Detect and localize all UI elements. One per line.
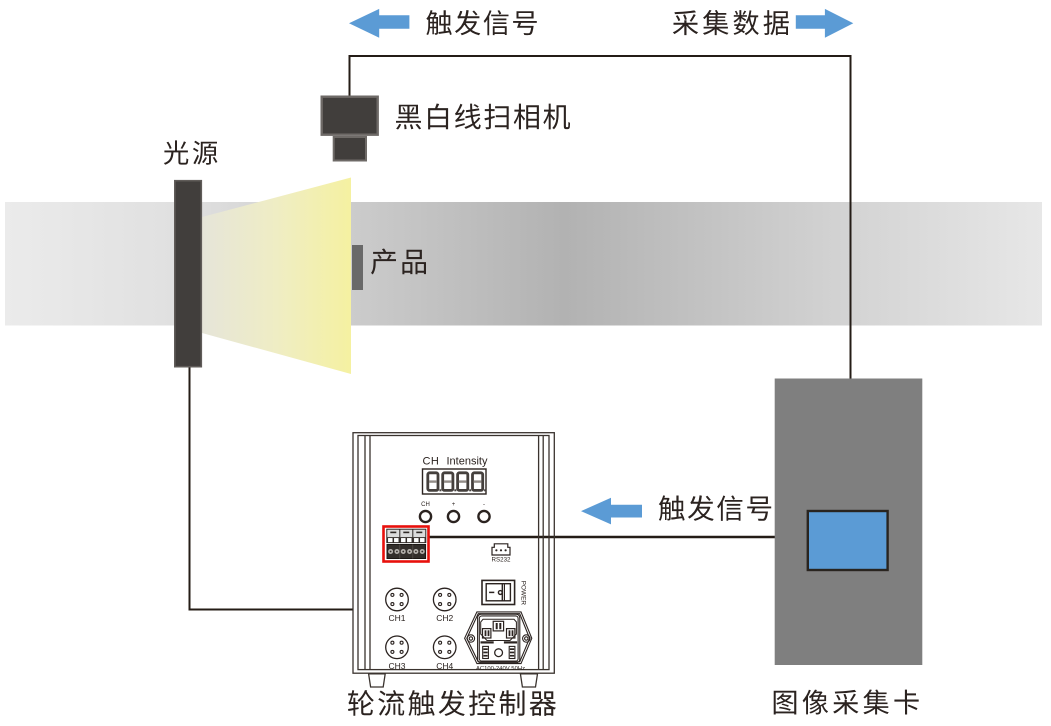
svg-text:AC100-240V 50Hz: AC100-240V 50Hz (476, 666, 525, 672)
svg-text:CH2: CH2 (436, 613, 453, 623)
svg-text:+: + (452, 502, 456, 508)
svg-text:-: - (483, 502, 485, 508)
svg-text:Intensity: Intensity (447, 456, 488, 468)
svg-text:CH: CH (423, 456, 440, 468)
svg-text:RS232: RS232 (492, 557, 511, 564)
svg-text:CH: CH (421, 502, 430, 508)
svg-text:POWER: POWER (520, 581, 527, 606)
svg-text:CH1: CH1 (388, 613, 405, 623)
svg-text:CH3: CH3 (388, 661, 405, 671)
svg-text:CH4: CH4 (436, 661, 453, 671)
